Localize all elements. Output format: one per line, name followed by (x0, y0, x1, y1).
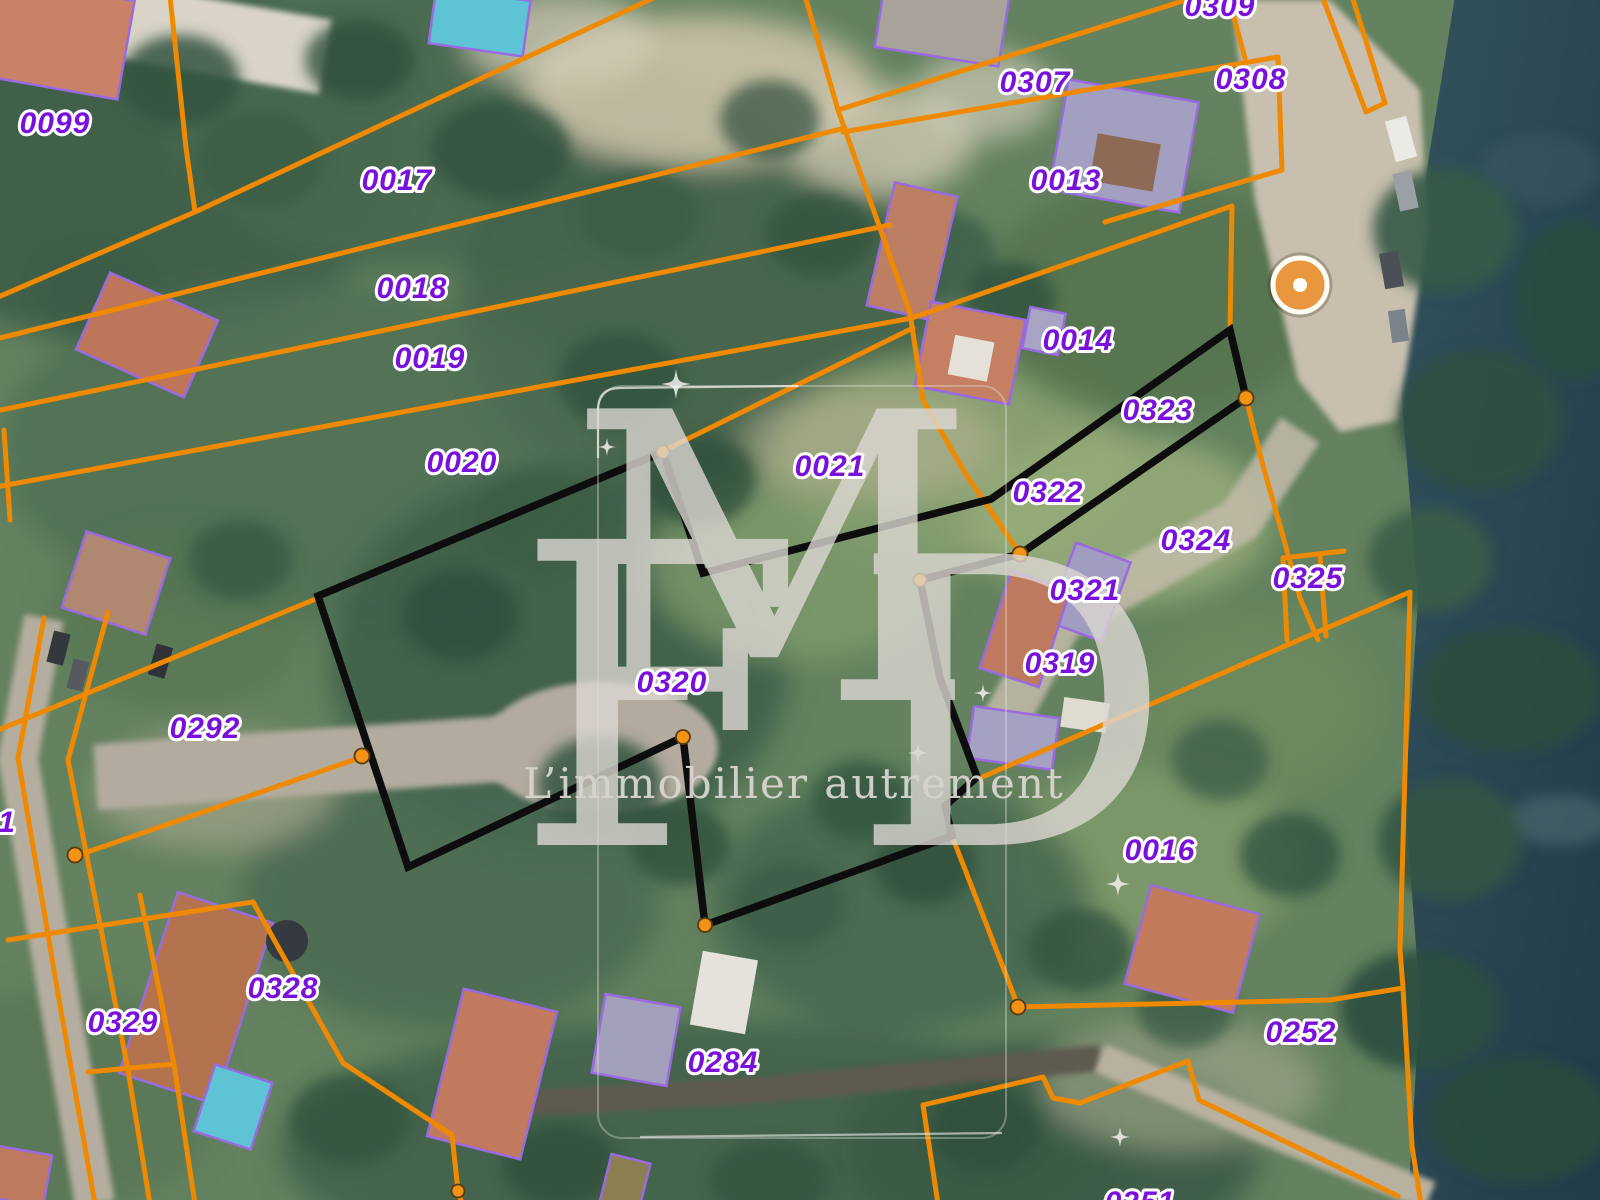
parcel-label-0329: 0329 (88, 1006, 159, 1039)
parcel-label-0307: 0307 (1000, 66, 1071, 99)
parcel-label-0324: 0324 (1161, 524, 1232, 557)
parcel-label-0309: 0309 (1185, 0, 1256, 23)
parcel-label-0252: 0252 (1266, 1016, 1337, 1049)
parcel-label-0013: 0013 (1031, 164, 1102, 197)
cadastral-map[interactable]: F M D L’immobilier autrement 0099 0017 0… (0, 0, 1600, 1200)
parcel-label-0021: 0021 (795, 450, 866, 483)
parcel-label-0323: 0323 (1123, 394, 1194, 427)
parcel-label-0018: 0018 (377, 272, 448, 305)
watermark-letter-d: D (852, 475, 1173, 940)
parcel-label-0292: 0292 (170, 712, 241, 745)
location-marker-icon (1269, 254, 1331, 316)
parcel-label-0320: 0320 (637, 666, 708, 699)
parcel-label-0099: 0099 (20, 107, 91, 140)
parcel-label-0016: 0016 (1125, 834, 1196, 867)
parcel-label-0017: 0017 (362, 164, 433, 197)
parcel-label-0019: 0019 (395, 342, 466, 375)
parcel-label-0322: 0322 (1013, 476, 1084, 509)
parcel-label-0251: 0251 (1105, 1186, 1176, 1200)
parcel-label-0014: 0014 (1043, 324, 1114, 357)
parcel-label-0321: 0321 (1050, 574, 1121, 607)
parcel-label-partial-1: 1 (0, 806, 16, 839)
parcel-label-0284: 0284 (688, 1046, 759, 1079)
parcel-label-0328: 0328 (248, 972, 319, 1005)
parcel-label-0319: 0319 (1025, 647, 1096, 680)
parcel-label-0325: 0325 (1273, 562, 1344, 595)
parcel-label-0020: 0020 (427, 446, 498, 479)
parcel-label-0308: 0308 (1216, 63, 1287, 96)
watermark-tagline: L’immobilier autrement (523, 759, 1065, 808)
